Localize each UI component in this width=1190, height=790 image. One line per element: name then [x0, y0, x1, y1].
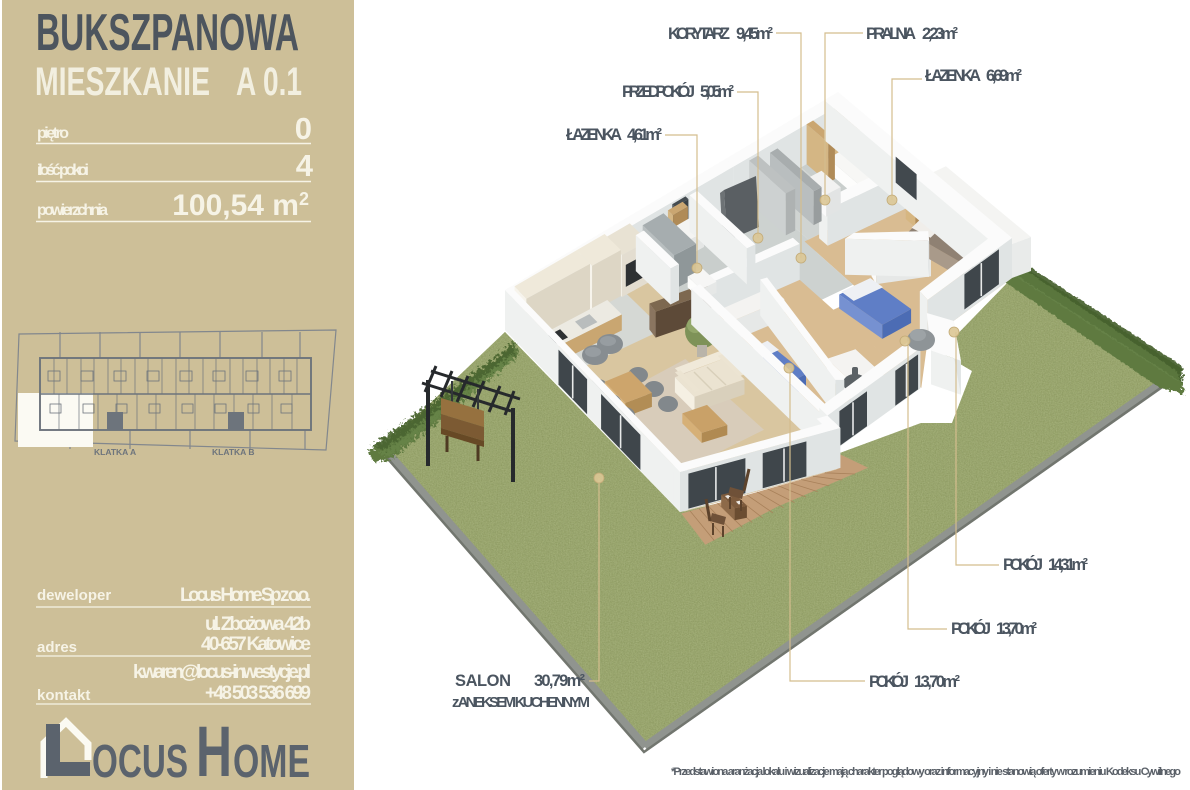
- svg-text:OME: OME: [233, 735, 310, 787]
- svg-text:A 0.1: A 0.1: [236, 60, 302, 104]
- svg-text:ŁAZIENKA: ŁAZIENKA: [566, 126, 622, 144]
- svg-text:piętro: piętro: [37, 125, 69, 142]
- svg-text:*Przedstawiona aranżacja lokal: *Przedstawiona aranżacja lokalu i wizual…: [671, 766, 1181, 778]
- svg-text:H: H: [196, 713, 232, 790]
- svg-text:kontakt: kontakt: [37, 687, 90, 704]
- svg-text:100,54 m2: 100,54 m2: [172, 189, 309, 222]
- svg-text:5,05m²: 5,05m²: [700, 83, 735, 101]
- svg-text:POKÓJ: POKÓJ: [1003, 555, 1043, 574]
- svg-text:k.waren@locus-inwestycje.pl: k.waren@locus-inwestycje.pl: [133, 662, 311, 683]
- svg-text:adres: adres: [37, 639, 77, 656]
- svg-text:40-657 Katowice: 40-657 Katowice: [201, 634, 311, 655]
- svg-text:SALON: SALON: [455, 672, 511, 690]
- svg-text:ilość pokoi: ilość pokoi: [37, 162, 89, 179]
- svg-text:Locus Home Sp z o.o.: Locus Home Sp z o.o.: [180, 585, 311, 606]
- svg-text:13,70m²: 13,70m²: [914, 673, 961, 691]
- svg-text:OCUS: OCUS: [92, 735, 188, 787]
- svg-text:14,31m²: 14,31m²: [1048, 556, 1089, 574]
- svg-text:2,23m²: 2,23m²: [922, 25, 959, 43]
- svg-text:POKÓJ: POKÓJ: [869, 672, 909, 691]
- svg-text:ul. Zbożowa 42b: ul. Zbożowa 42b: [205, 614, 311, 635]
- svg-text:9,45m²: 9,45m²: [736, 25, 774, 43]
- svg-text:KORYTARZ: KORYTARZ: [668, 25, 730, 43]
- svg-text:KLATKA A: KLATKA A: [94, 447, 136, 457]
- svg-text:PRALNIA: PRALNIA: [866, 25, 916, 43]
- svg-text:ŁAZIENKA: ŁAZIENKA: [925, 67, 981, 85]
- svg-text:BUKSZPANOWA: BUKSZPANOWA: [36, 4, 299, 62]
- svg-text:6,69m²: 6,69m²: [986, 67, 1023, 85]
- svg-text:13,70m²: 13,70m²: [996, 620, 1038, 638]
- svg-text:30,79m²: 30,79m²: [534, 672, 586, 690]
- svg-text:KLATKA B: KLATKA B: [212, 447, 255, 457]
- svg-text:z ANEKSEM KUCHENNYM: z ANEKSEM KUCHENNYM: [452, 694, 590, 711]
- svg-text:MIESZKANIE: MIESZKANIE: [35, 60, 210, 104]
- svg-text:PRZEDPOKÓJ: PRZEDPOKÓJ: [622, 82, 695, 101]
- svg-text:POKÓJ: POKÓJ: [951, 619, 991, 638]
- svg-text:4: 4: [296, 148, 314, 183]
- svg-text:powierzchnia: powierzchnia: [37, 202, 108, 219]
- svg-text:4,61m²: 4,61m²: [627, 126, 663, 144]
- svg-text:+48 503 536 699: +48 503 536 699: [205, 683, 311, 704]
- svg-text:deweloper: deweloper: [37, 587, 111, 604]
- svg-text:0: 0: [295, 111, 312, 146]
